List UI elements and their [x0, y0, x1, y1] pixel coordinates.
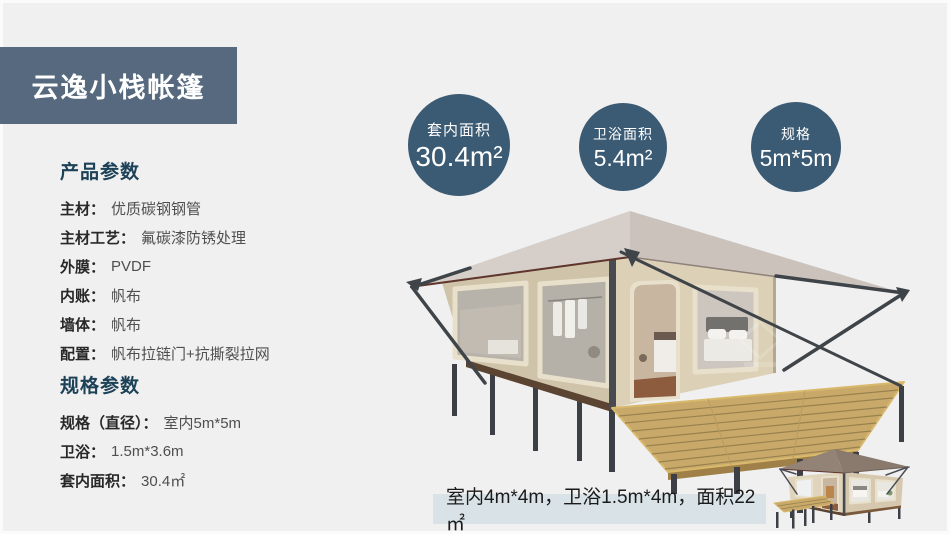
- param-label: 卫浴：: [60, 441, 105, 462]
- slide: 云逸小栈帐篷 产品参数 主材： 优质碳钢钢管 主材工艺： 氟碳漆防锈处理 外膜：…: [0, 0, 950, 534]
- stat-value: 5m*5m: [760, 147, 833, 170]
- param-row: 套内面积： 30.4㎡: [60, 466, 405, 495]
- param-row: 规格（直径）： 室内5m*5m: [60, 408, 405, 437]
- small-tent-window-right-2: [876, 480, 895, 502]
- param-label: 内账：: [60, 285, 105, 306]
- param-row: 内账： 帆布: [60, 281, 405, 310]
- thumbnail-tent-image: [770, 438, 948, 534]
- section-heading-product-params: 产品参数: [60, 162, 405, 184]
- param-value: 室内5m*5m: [164, 412, 242, 433]
- param-row: 配置： 帆布拉链门+抗撕裂拉网: [60, 339, 405, 368]
- stat-circle-indoor-area: 套内面积 30.4m²: [408, 94, 510, 196]
- stat-value: 30.4m²: [415, 143, 502, 171]
- param-value: 帆布拉链门+抗撕裂拉网: [111, 343, 270, 364]
- dimensions-caption: 室内4m*4m，卫浴1.5m*4m，面积22㎡: [433, 494, 766, 524]
- dimensions-caption-text: 室内4m*4m，卫浴1.5m*4m，面积22㎡: [446, 482, 766, 534]
- small-tent-window-left: [796, 479, 812, 499]
- stat-label: 规格: [781, 124, 811, 144]
- param-label: 墙体：: [60, 314, 105, 335]
- param-value: PVDF: [111, 258, 151, 275]
- param-value: 优质碳钢钢管: [111, 198, 201, 219]
- param-value: 30.4㎡: [141, 470, 185, 491]
- tent-corner-post: [609, 254, 616, 410]
- stat-label: 套内面积: [427, 119, 491, 140]
- param-label: 主材：: [60, 198, 105, 219]
- param-row: 主材： 优质碳钢钢管: [60, 194, 405, 223]
- tent-window-left-1: [455, 283, 526, 364]
- param-label: 主材工艺：: [60, 227, 135, 248]
- param-label: 外膜：: [60, 256, 105, 277]
- section-heading-spec-params: 规格参数: [60, 376, 405, 398]
- param-row: 墙体： 帆布: [60, 310, 405, 339]
- param-label: 套内面积：: [60, 470, 135, 491]
- tent-window-left-2: [540, 279, 608, 386]
- param-row: 外膜： PVDF: [60, 252, 405, 281]
- small-tent-window-right-1: [850, 478, 870, 504]
- param-value: 帆布: [111, 285, 141, 306]
- stat-circle-size: 规格 5m*5m: [751, 102, 841, 192]
- stat-value: 5.4m²: [594, 147, 653, 170]
- tent-corner-post-leg: [609, 410, 615, 472]
- param-value: 1.5m*3.6m: [111, 443, 184, 460]
- tent-door: [630, 280, 680, 402]
- product-params-section: 产品参数 主材： 优质碳钢钢管 主材工艺： 氟碳漆防锈处理 外膜： PVDF 内…: [60, 162, 405, 495]
- small-tent-corner-post: [843, 471, 846, 516]
- product-title-banner: 云逸小栈帐篷: [0, 47, 237, 124]
- param-label: 配置：: [60, 343, 105, 364]
- param-value: 氟碳漆防锈处理: [141, 227, 246, 248]
- param-row: 卫浴： 1.5m*3.6m: [60, 437, 405, 466]
- stat-circle-bathroom-area: 卫浴面积 5.4m²: [579, 103, 667, 191]
- stat-label: 卫浴面积: [593, 124, 653, 144]
- small-tent-roof: [779, 449, 910, 473]
- param-row: 主材工艺： 氟碳漆防锈处理: [60, 223, 405, 252]
- param-value: 帆布: [111, 314, 141, 335]
- tent-window-front: [695, 287, 756, 372]
- page-title: 云逸小栈帐篷: [32, 66, 206, 105]
- param-label: 规格（直径）：: [60, 412, 158, 433]
